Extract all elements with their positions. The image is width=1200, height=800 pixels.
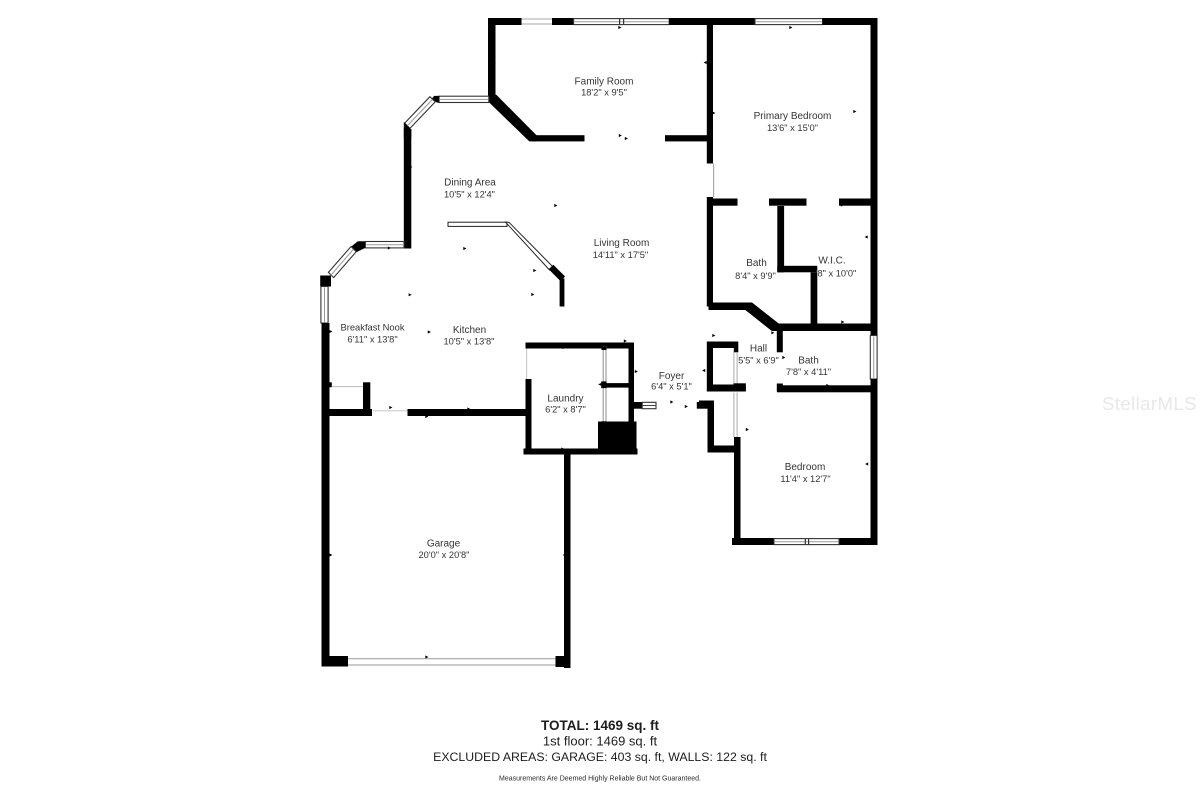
svg-text:TOTAL: 1469 sq. ft: TOTAL: 1469 sq. ft	[541, 718, 660, 733]
svg-text:Foyer: Foyer	[659, 371, 685, 382]
svg-text:11'4" x 12'7": 11'4" x 12'7"	[780, 474, 830, 484]
svg-text:Breakfast Nook: Breakfast Nook	[340, 322, 404, 333]
svg-text:W.I.C.: W.I.C.	[818, 256, 845, 267]
svg-text:6'2" x 8'7": 6'2" x 8'7"	[545, 405, 586, 415]
svg-text:EXCLUDED AREAS: GARAGE: 403 sq: EXCLUDED AREAS: GARAGE: 403 sq. ft, WALL…	[433, 750, 767, 764]
svg-text:Kitchen: Kitchen	[453, 325, 486, 336]
svg-text:Dining Area: Dining Area	[444, 178, 496, 189]
svg-text:18'2" x 9'5": 18'2" x 9'5"	[581, 88, 627, 98]
svg-text:Garage: Garage	[427, 539, 461, 550]
svg-text:5'5" x 6'9": 5'5" x 6'9"	[738, 356, 779, 366]
svg-text:10'5" x 13'8": 10'5" x 13'8"	[444, 337, 495, 347]
svg-text:Living Room: Living Room	[594, 238, 650, 249]
svg-text:Measurements Are Deemed Highly: Measurements Are Deemed Highly Reliable …	[499, 776, 701, 783]
svg-text:1st floor: 1469 sq. ft: 1st floor: 1469 sq. ft	[543, 734, 658, 749]
svg-text:Bedroom: Bedroom	[785, 462, 826, 473]
svg-text:'8" x 10'0": '8" x 10'0"	[816, 269, 857, 279]
svg-text:14'11" x 17'5": 14'11" x 17'5"	[593, 250, 648, 260]
svg-text:10'5" x 12'4": 10'5" x 12'4"	[444, 190, 495, 200]
svg-text:13'6" x 15'0": 13'6" x 15'0"	[767, 123, 818, 133]
svg-text:Hall: Hall	[750, 344, 767, 355]
svg-text:Family Room: Family Room	[575, 77, 634, 88]
svg-text:6'4" x 5'1": 6'4" x 5'1"	[651, 382, 692, 392]
svg-text:Bath: Bath	[746, 258, 767, 269]
svg-text:8'4" x 9'9": 8'4" x 9'9"	[735, 271, 776, 281]
svg-text:6'11" x 13'8": 6'11" x 13'8"	[347, 335, 397, 345]
svg-text:StellarMLS: StellarMLS	[1102, 393, 1197, 414]
svg-text:Primary Bedroom: Primary Bedroom	[754, 111, 832, 122]
svg-text:20'0" x 20'8": 20'0" x 20'8"	[419, 550, 470, 560]
svg-text:Laundry: Laundry	[547, 394, 583, 405]
svg-text:7'8" x 4'11": 7'8" x 4'11"	[786, 367, 831, 377]
svg-text:Bath: Bath	[798, 356, 819, 367]
